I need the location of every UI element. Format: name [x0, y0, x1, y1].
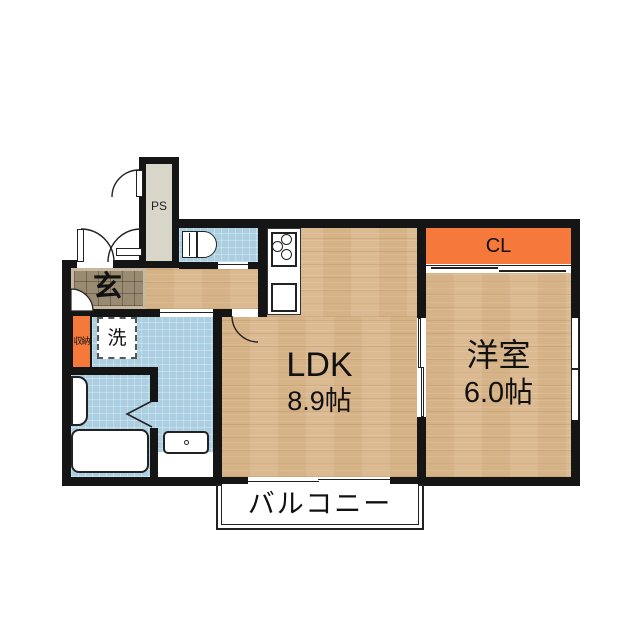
ps-label: PS — [146, 200, 172, 212]
door-swing-arcs — [0, 0, 640, 640]
ps-door-arc — [112, 170, 139, 197]
western-room-size-label: 6.0帖 — [426, 379, 571, 408]
ldk-label: LDK — [222, 348, 417, 382]
ldk-size-text: 8.9帖 — [287, 386, 352, 416]
genkan-label: 玄 — [80, 273, 135, 302]
genkan-label-text: 玄 — [93, 271, 122, 303]
ldk-label-text: LDK — [286, 346, 352, 384]
ps-label-text: PS — [151, 199, 167, 213]
western-room-size-text: 6.0帖 — [464, 377, 533, 409]
western-room-label-text: 洋室 — [466, 337, 530, 373]
western-room-label: 洋室 — [426, 339, 571, 371]
ldk-size-label: 8.9帖 — [222, 388, 417, 415]
entrance-left-door-arc — [81, 229, 114, 262]
entrance-right-door-arc — [108, 229, 141, 262]
ldk-door-arc — [232, 316, 258, 342]
bathroom-folding-door — [127, 401, 152, 427]
floor-plan: CL 収納 洗 — [0, 0, 640, 640]
